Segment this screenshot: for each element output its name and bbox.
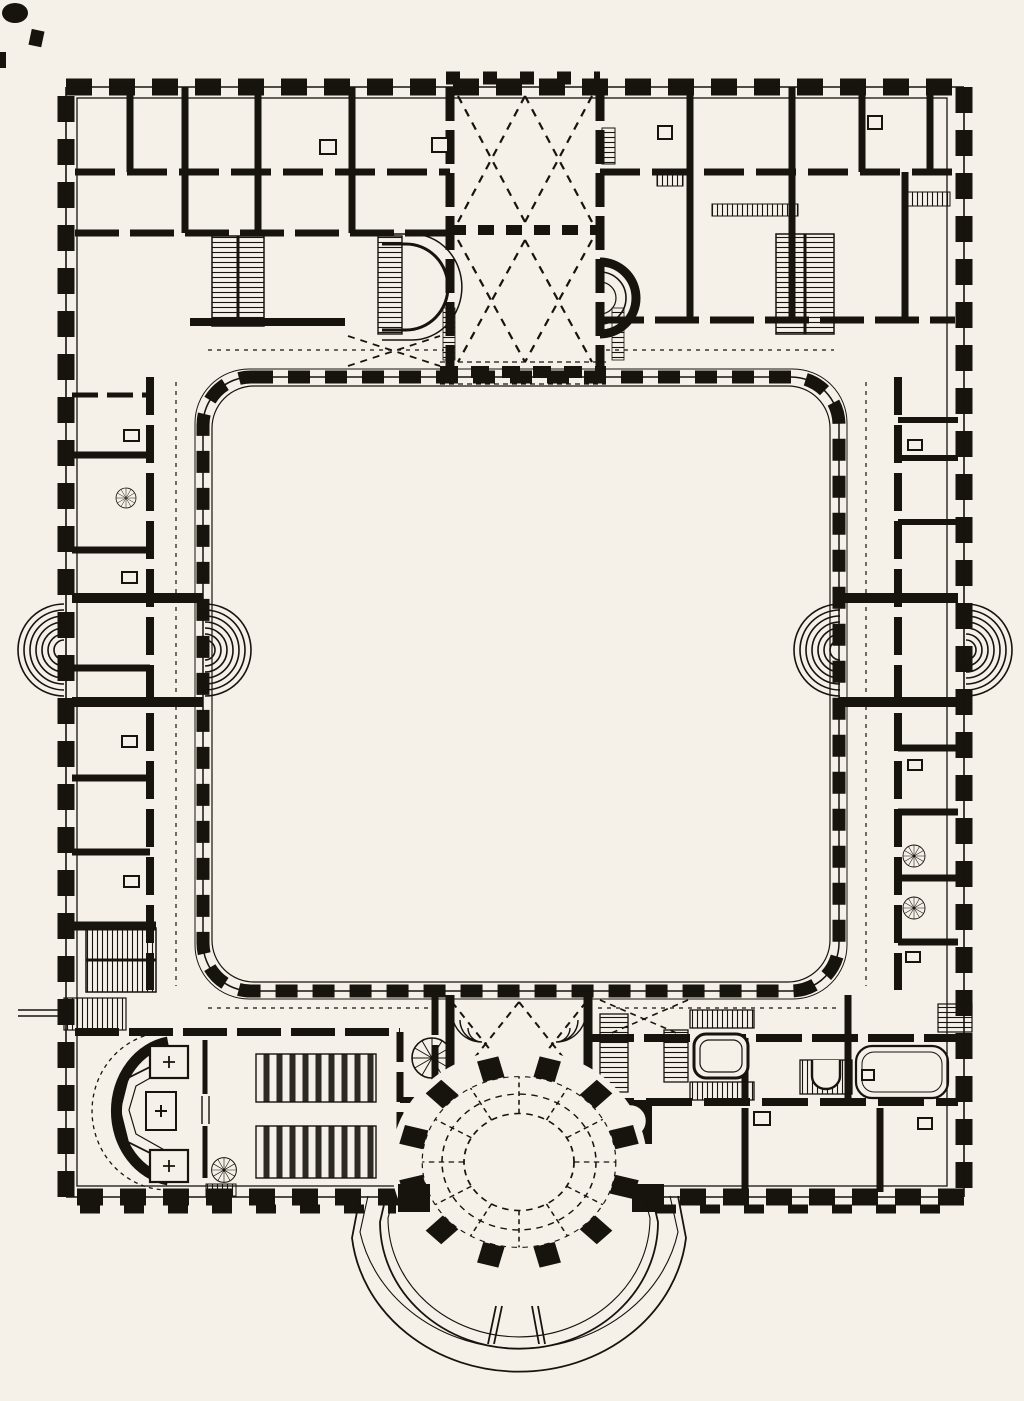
pulpit-stair: [212, 1158, 237, 1183]
north-west-staircase: [212, 236, 264, 326]
side-altar: [150, 1046, 188, 1078]
pew-block: [256, 1126, 376, 1178]
high-altar: [146, 1092, 176, 1130]
floor-plan-drawing: [0, 0, 1024, 1401]
winder-stair: [116, 488, 136, 508]
small-stair: [906, 192, 950, 206]
north-east-staircase: [776, 234, 834, 334]
scanned-plan-page: [0, 0, 1024, 1401]
small-u-stair: [800, 1060, 852, 1094]
winder-stair: [903, 845, 925, 867]
pulpit-steps: [206, 1184, 236, 1196]
small-stair: [602, 128, 615, 164]
small-stair: [712, 204, 798, 216]
corner-stair: [938, 1004, 972, 1032]
side-altar: [150, 1150, 188, 1182]
small-stair: [657, 170, 683, 186]
winder-stair: [903, 897, 925, 919]
pew-block: [256, 1054, 376, 1102]
